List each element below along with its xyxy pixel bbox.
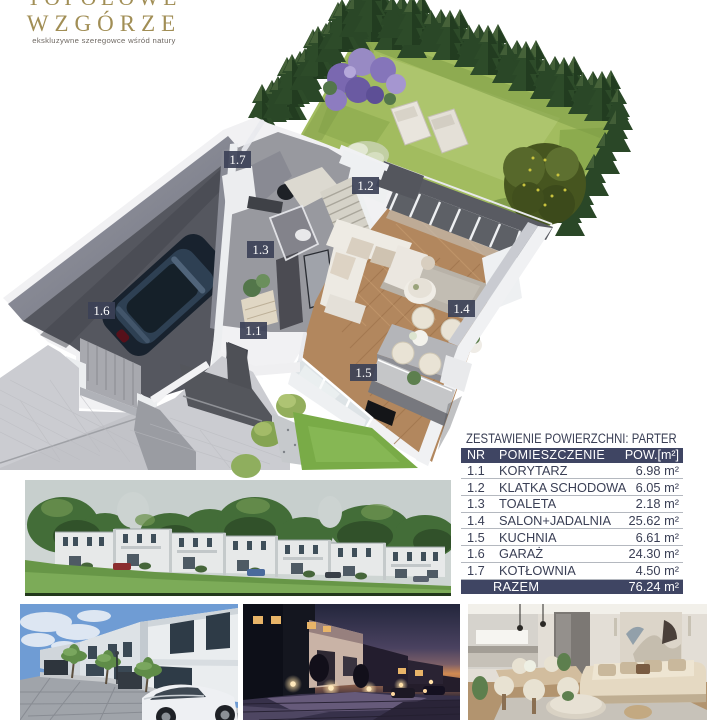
svg-text:1.1: 1.1 (245, 323, 261, 338)
svg-text:1.5: 1.5 (355, 365, 371, 380)
svg-text:1.3: 1.3 (252, 242, 268, 257)
svg-text:1.6: 1.6 (93, 303, 110, 318)
svg-text:1.2: 1.2 (357, 178, 373, 193)
svg-text:1.4: 1.4 (453, 301, 470, 316)
svg-text:1.7: 1.7 (229, 152, 246, 167)
